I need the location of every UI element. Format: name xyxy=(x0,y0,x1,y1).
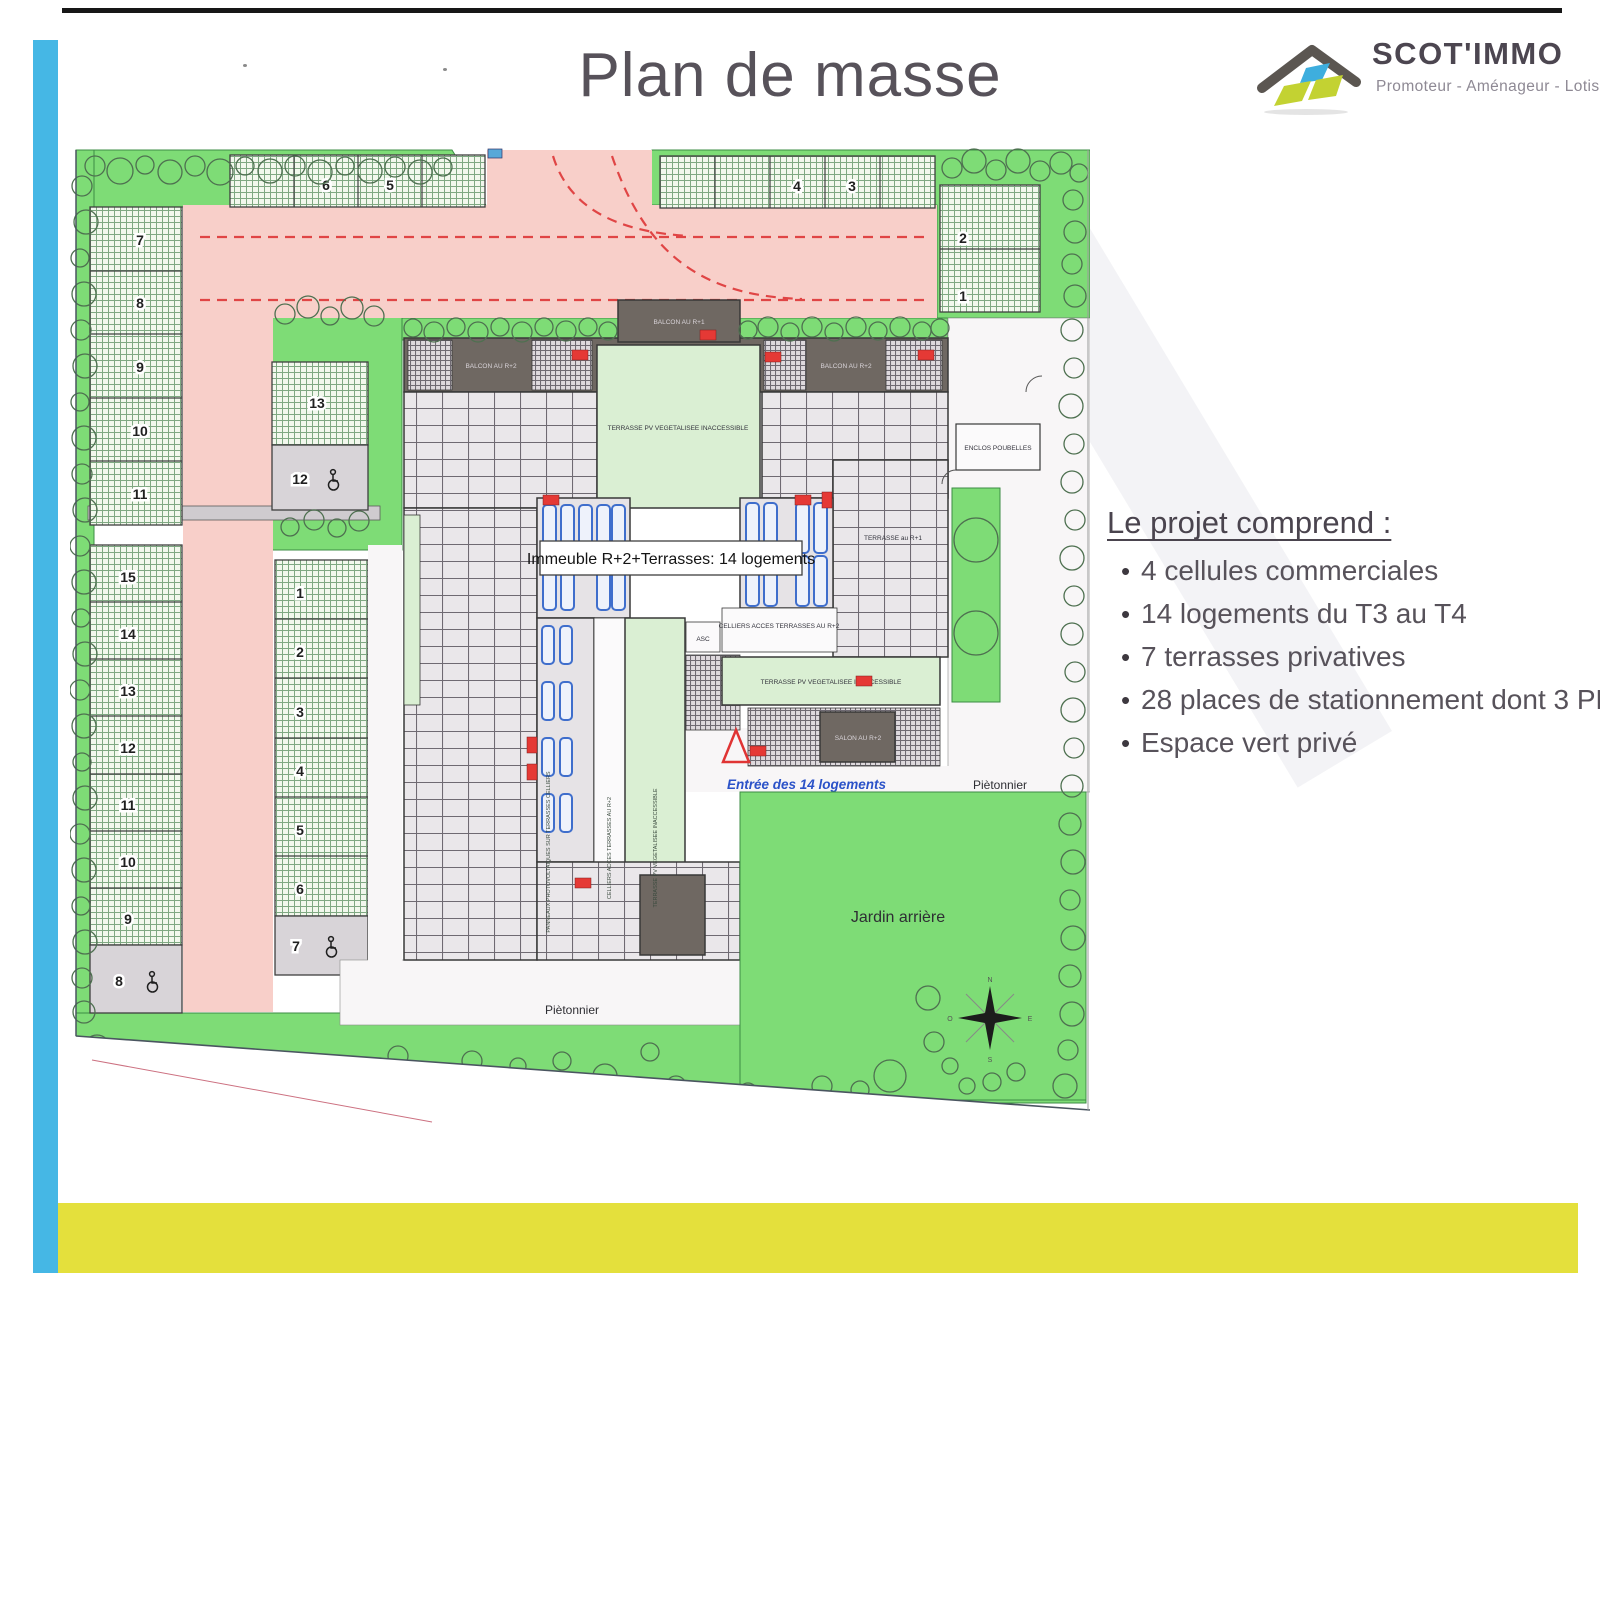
parking-number: 13 xyxy=(120,683,136,699)
green-side-strip xyxy=(952,488,1000,702)
parking-top-right: 4 3 xyxy=(660,156,935,208)
parking-number: 1 xyxy=(296,585,304,601)
compass-s: S xyxy=(988,1057,993,1064)
bullet-text: Espace vert privé xyxy=(1141,727,1357,759)
salon-label: SALON AU R+2 xyxy=(835,735,882,742)
bullet-text: 7 terrasses privatives xyxy=(1141,641,1406,673)
building-label: Immeuble R+2+Terrasses: 14 logements xyxy=(527,551,815,568)
roof-logo-icon xyxy=(1256,40,1364,120)
entrance-label: Entrée des 14 logements xyxy=(727,777,887,792)
balcony-label: BALCON AU R+2 xyxy=(820,363,872,370)
logo-tagline: Promoteur - Aménageur - Lotisseur xyxy=(1376,78,1600,96)
road-entry-marker xyxy=(488,149,502,158)
parking-number: 4 xyxy=(793,178,801,194)
parking-left-upper: 7 8 9 10 11 xyxy=(90,207,182,525)
parking-number: 12 xyxy=(292,471,308,487)
parking-number: 7 xyxy=(136,232,144,248)
bullet-icon: • xyxy=(1121,599,1141,630)
parking-number: 3 xyxy=(848,178,856,194)
terrace-label: TERRASSE PV VEGETALISEE INACCESSIBLE xyxy=(761,679,902,686)
bottom-yellow-stripe xyxy=(58,1203,1578,1273)
site-plan: 6 5 4 3 2 1 7 8 9 10 11 13 12 xyxy=(70,145,1090,1145)
parking-number: 2 xyxy=(296,644,304,660)
bullet-text: 14 logements du T3 au T4 xyxy=(1141,598,1467,630)
bullet-icon: • xyxy=(1121,728,1141,759)
balcony-label: BALCON AU R+2 xyxy=(465,363,517,370)
parking-number: 8 xyxy=(115,973,123,989)
parking-number: 7 xyxy=(292,938,300,954)
parking-number: 1 xyxy=(959,288,967,304)
elevator-label: ASC xyxy=(696,636,710,643)
parking-number: 10 xyxy=(120,854,136,870)
parking-number: 3 xyxy=(296,704,304,720)
parking-number: 5 xyxy=(296,822,304,838)
compass-e: E xyxy=(1028,1016,1033,1023)
walkway-label-right: Piètonnier xyxy=(973,778,1027,792)
list-item: • 4 cellules commerciales xyxy=(1085,555,1600,598)
parking-number: 15 xyxy=(120,569,136,585)
scan-speck xyxy=(243,64,247,67)
company-logo: SCOT'IMMO Promoteur - Aménageur - Lotiss… xyxy=(1245,30,1600,140)
parking-top-left: 6 5 xyxy=(230,155,485,207)
parking-number: 5 xyxy=(386,177,394,193)
parking-number: 10 xyxy=(132,423,148,439)
logo-name: SCOT'IMMO xyxy=(1372,36,1563,72)
project-heading: Le projet comprend : xyxy=(1107,505,1600,541)
bullet-text: 4 cellules commerciales xyxy=(1141,555,1438,587)
parking-number: 9 xyxy=(136,359,144,375)
compass-o: O xyxy=(947,1016,953,1023)
list-item: • 28 places de stationnement dont 3 PMR xyxy=(1085,684,1600,727)
page-title: Plan de masse xyxy=(400,40,1180,111)
list-item: • Espace vert privé xyxy=(1085,727,1600,770)
terrace-label: TERRASSE PV VEGETALISEE INACCESSIBLE xyxy=(608,425,749,432)
project-summary: Le projet comprend : • 4 cellules commer… xyxy=(1085,505,1600,770)
solar-panels-label: PANNEAUX PHOTOVOLTAIQUES SUR TERRASSES C… xyxy=(546,771,552,933)
left-blue-stripe xyxy=(33,40,58,1273)
bullet-icon: • xyxy=(1121,642,1141,673)
parking-number: 2 xyxy=(959,230,967,246)
parking-right-column: 2 1 xyxy=(940,185,1040,312)
compass-n: N xyxy=(987,977,992,984)
parking-left-lower: 15 14 13 12 11 10 9 8 xyxy=(90,545,182,1013)
terrace-label: TERRASSE PV VEGETALISEE INACCESSIBLE xyxy=(653,788,659,907)
cellar-label: CELLIERS ACCES TERRASSES AU R+2 xyxy=(607,797,613,899)
parking-mid-lower: 1 2 3 4 5 6 7 xyxy=(275,560,368,975)
parking-number: 8 xyxy=(136,295,144,311)
parking-number: 9 xyxy=(124,911,132,927)
scan-edge-line xyxy=(62,8,1562,13)
parking-number: 12 xyxy=(120,740,136,756)
list-item: • 14 logements du T3 au T4 xyxy=(1085,598,1600,641)
parking-number: 11 xyxy=(133,486,148,502)
terrace-label: TERRASSE au R+1 xyxy=(864,535,922,542)
parking-number: 11 xyxy=(121,797,136,813)
garden-label: Jardin arrière xyxy=(851,909,945,926)
list-item: • 7 terrasses privatives xyxy=(1085,641,1600,684)
parking-mid-upper: 13 12 xyxy=(272,362,368,510)
balcony-label: BALCON AU R+1 xyxy=(653,319,705,326)
parking-number: 6 xyxy=(296,881,304,897)
parking-number: 14 xyxy=(120,626,136,642)
walkway-label-bottom: Piètonnier xyxy=(545,1003,599,1017)
rear-garden: Jardin arrière N S E O xyxy=(740,792,1086,1100)
parking-number: 13 xyxy=(309,395,325,411)
bins-label: ENCLOS POUBELLES xyxy=(964,445,1032,452)
cellar-label: CELLIERS ACCES TERRASSES AU R+2 xyxy=(719,623,840,630)
bullet-icon: • xyxy=(1121,685,1141,716)
bullet-text: 28 places de stationnement dont 3 PMR xyxy=(1141,684,1600,716)
bullet-icon: • xyxy=(1121,556,1141,587)
parking-number: 4 xyxy=(296,763,304,779)
